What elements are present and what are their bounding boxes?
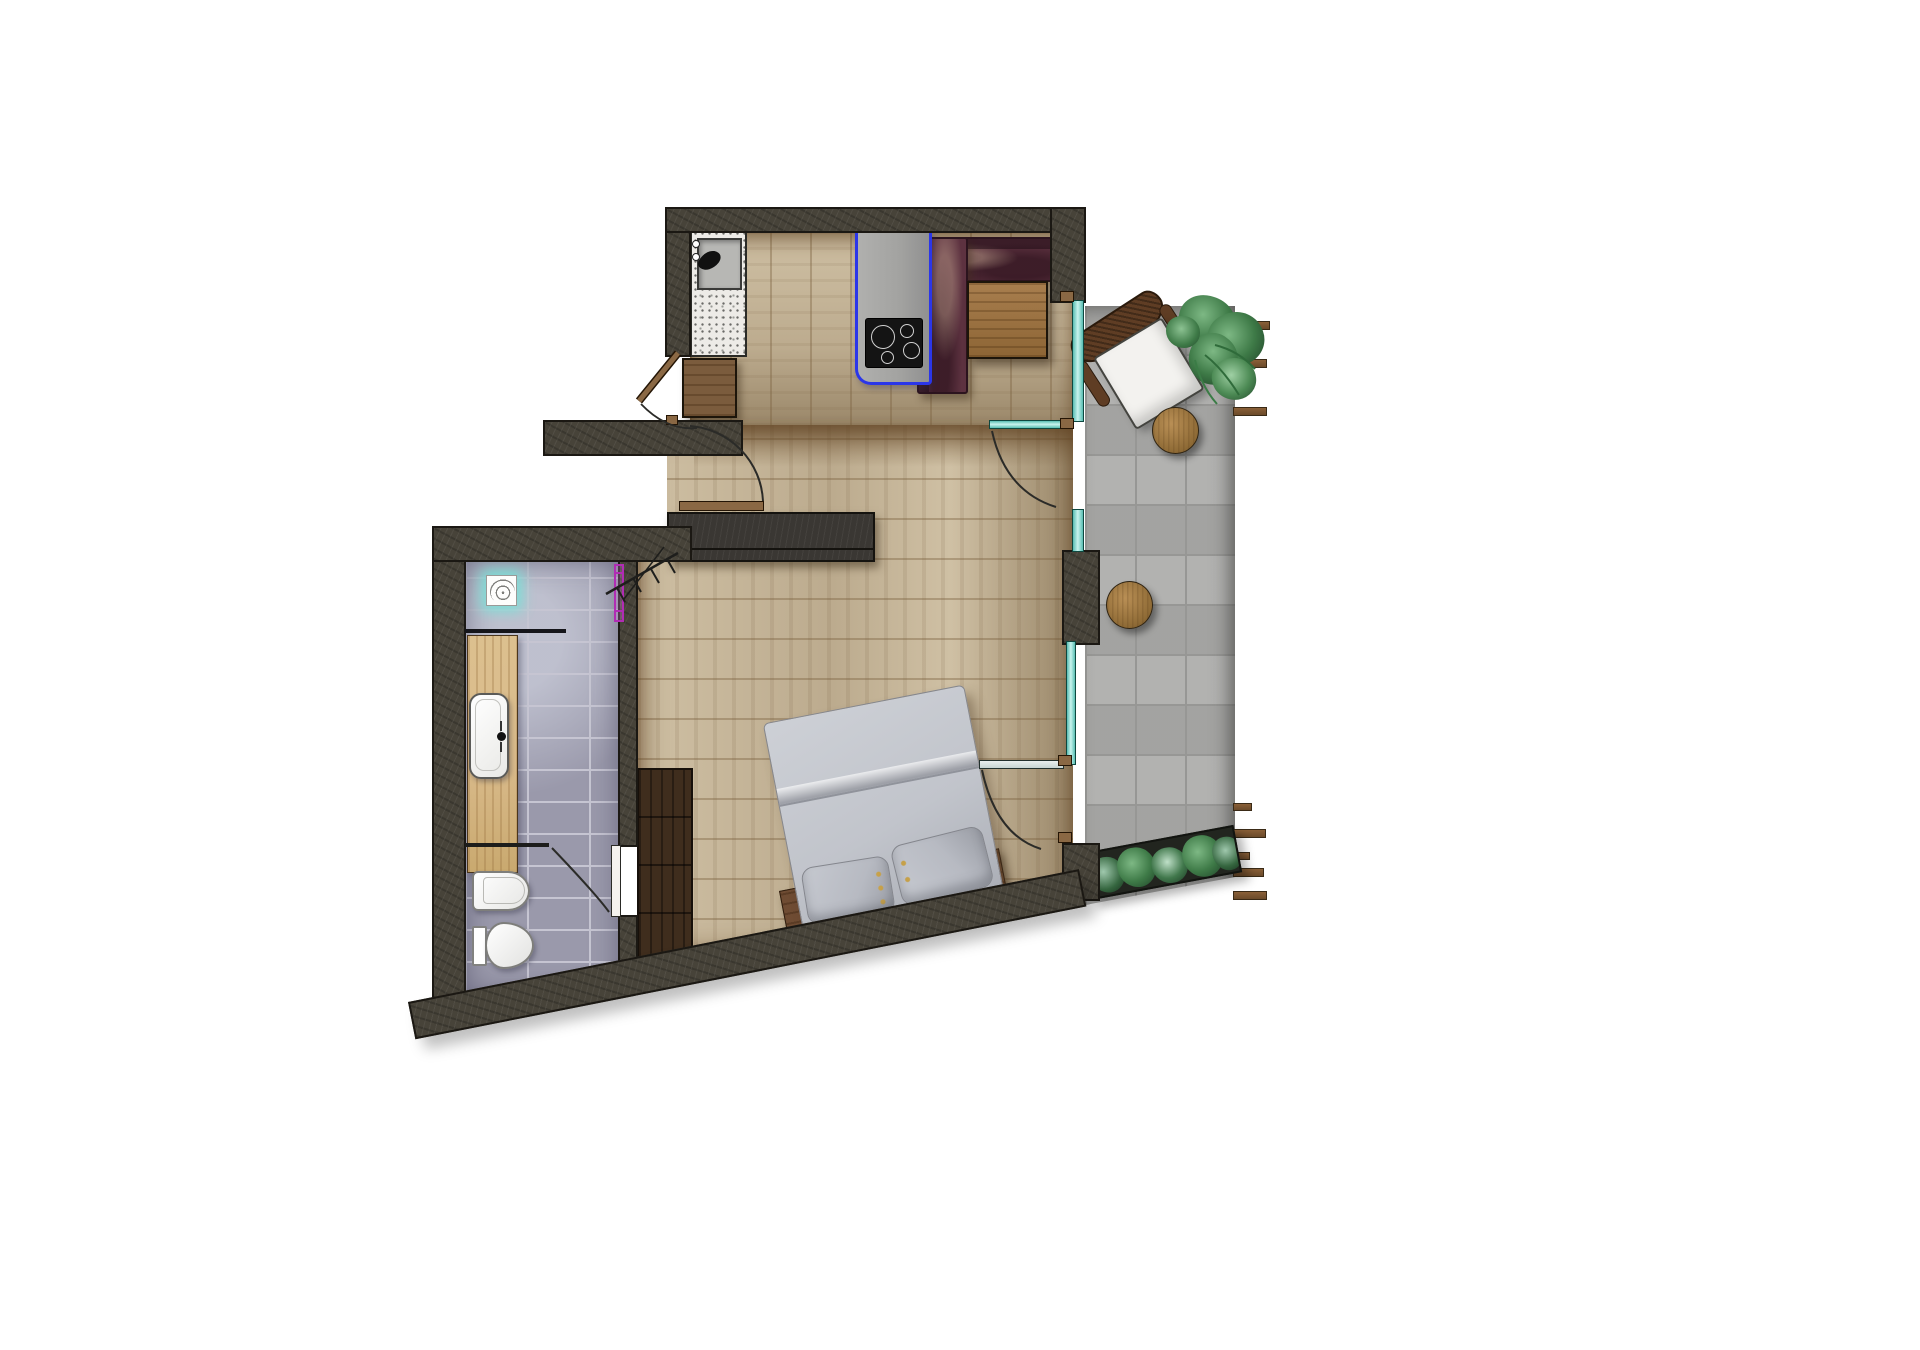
- glass-wall-mid: [1072, 509, 1084, 552]
- washbasin: [469, 693, 509, 779]
- bathroom-door-leaf: [611, 845, 621, 917]
- terrace-slat: [1233, 829, 1266, 838]
- plant-foliage: [1166, 316, 1200, 348]
- wall-hung-wc: [472, 871, 530, 911]
- wardrobe: [637, 768, 693, 964]
- terrace-slat: [1233, 803, 1252, 811]
- potted-plant: [1160, 290, 1270, 410]
- secondary-door-leaf-face: [639, 353, 678, 401]
- wc-seat-line: [483, 877, 525, 904]
- toilet-cistern-unit: [472, 922, 536, 970]
- terrace-door-lower-leaf: [979, 760, 1064, 769]
- wall-left-upper: [665, 231, 691, 357]
- coffee-table: [967, 281, 1048, 359]
- side-table-upper: [1152, 407, 1199, 454]
- door-jamb-tab: [1058, 832, 1072, 843]
- shower-spiral: [490, 579, 515, 604]
- wall-wing-left: [432, 560, 466, 1000]
- wall-bath-right-lower: [618, 915, 638, 962]
- door-jamb-tab: [1060, 418, 1074, 429]
- toilet-bowl: [485, 922, 534, 969]
- door-jamb-tab: [666, 415, 678, 425]
- door-jamb-tab: [1058, 755, 1072, 766]
- burner-ring: [881, 351, 894, 364]
- burner-ring: [903, 342, 920, 359]
- basin-faucet: [497, 732, 506, 741]
- duvet-fold: [776, 750, 978, 804]
- induction-cooktop: [865, 318, 923, 368]
- secondary-door-leaf: [639, 353, 678, 401]
- wall-top: [665, 207, 1085, 233]
- wall-stub-entry: [543, 420, 743, 456]
- floor-shading-band: [694, 425, 1073, 467]
- basin-tap-line: [500, 721, 502, 731]
- side-table-lower: [1106, 581, 1153, 629]
- towel-radiator: [614, 564, 624, 622]
- wall-pillar-mid: [1062, 550, 1100, 645]
- burner-ring: [900, 324, 914, 338]
- wall-top-right-corner: [1050, 207, 1086, 303]
- sideboard-divider: [669, 548, 873, 550]
- radiator-bar: [616, 572, 622, 574]
- terrace-slat: [1233, 891, 1267, 900]
- entry-door-leaf: [679, 501, 764, 511]
- media-sideboard: [667, 512, 875, 562]
- base-cabinet: [682, 358, 737, 418]
- radiator-bar: [616, 610, 622, 612]
- basin-tap-line: [500, 742, 502, 752]
- floor-plan-canvas: [0, 0, 1920, 1350]
- glass-wall-upper: [1072, 300, 1084, 422]
- shower-head-symbol: [486, 575, 517, 606]
- door-jamb-tab: [1060, 291, 1074, 302]
- kitchen-counter: [855, 230, 932, 385]
- wall-wing-top: [432, 526, 692, 562]
- faucet-knob: [692, 240, 700, 248]
- glass-wall-lower: [1066, 641, 1076, 765]
- burner-ring: [871, 325, 895, 349]
- sink-counter: [690, 228, 747, 357]
